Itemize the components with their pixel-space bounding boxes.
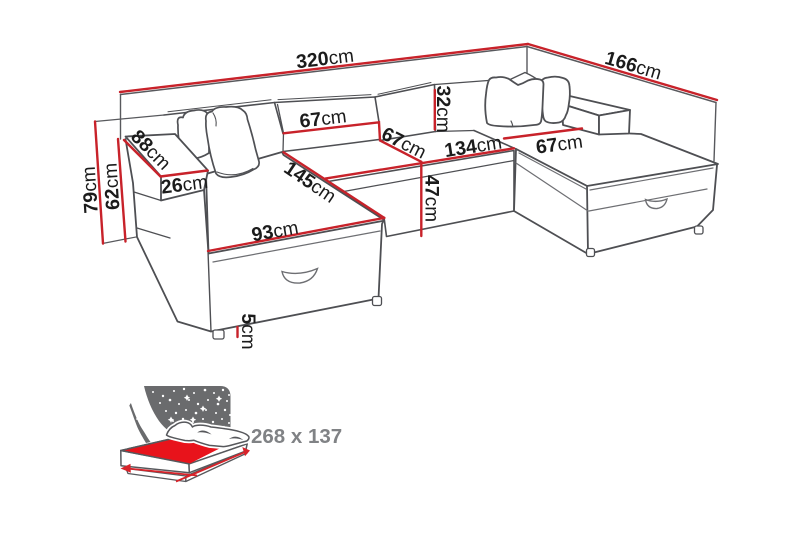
svg-text:47cm: 47cm [421, 175, 443, 222]
svg-text:62cm: 62cm [100, 162, 125, 210]
svg-text:79cm: 79cm [78, 166, 103, 214]
svg-text:32cm: 32cm [432, 85, 454, 132]
svg-text:5cm: 5cm [237, 313, 259, 349]
svg-text:268 x 137: 268 x 137 [251, 425, 342, 448]
